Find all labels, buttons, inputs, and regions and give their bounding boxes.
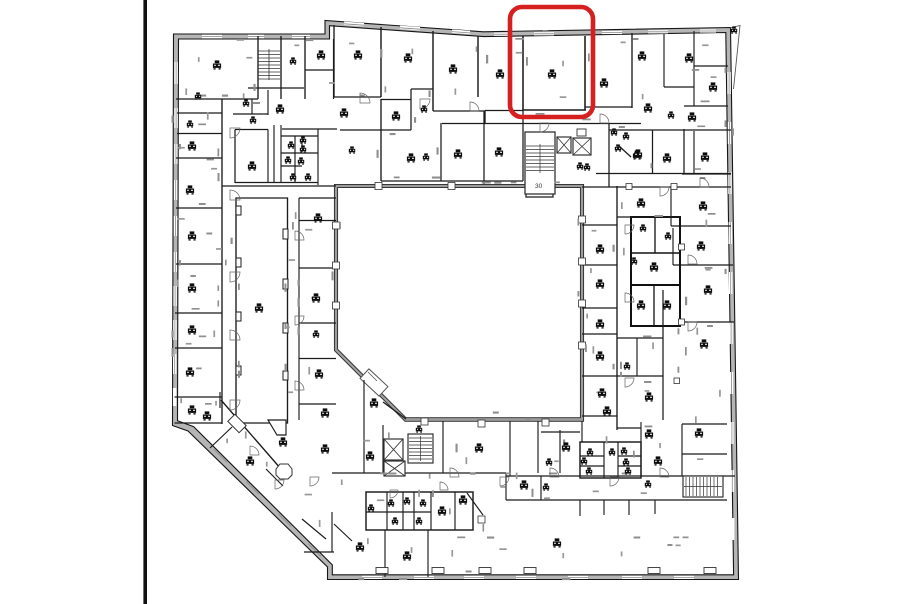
- svg-text:30: 30: [535, 183, 543, 190]
